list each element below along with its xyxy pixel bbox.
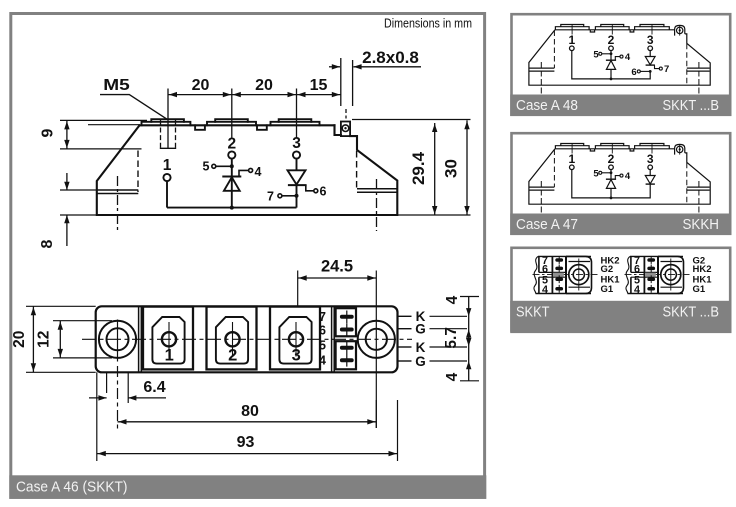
svg-text:6.4: 6.4 [143,379,165,396]
svg-text:7: 7 [319,310,326,324]
svg-text:SKKT ...B: SKKT ...B [663,304,720,321]
svg-text:6: 6 [320,185,327,199]
svg-text:K: K [416,340,426,355]
svg-text:2.8x0.8: 2.8x0.8 [362,48,419,67]
svg-text:6: 6 [319,323,326,337]
svg-text:12: 12 [36,331,53,348]
svg-text:30: 30 [442,159,461,178]
svg-text:3: 3 [292,347,301,365]
svg-text:SKKT ...B: SKKT ...B [663,97,720,114]
svg-text:24.5: 24.5 [321,258,353,276]
svg-text:9: 9 [40,128,57,137]
svg-text:5: 5 [593,49,599,60]
svg-text:2: 2 [608,33,615,47]
svg-text:20: 20 [255,77,273,94]
svg-text:3: 3 [647,152,654,166]
svg-text:Dimensions in mm: Dimensions in mm [384,16,472,31]
svg-text:4: 4 [444,295,461,304]
svg-text:G: G [415,322,426,337]
svg-text:3: 3 [647,33,654,47]
svg-text:4: 4 [625,52,631,63]
svg-text:29.4: 29.4 [409,151,428,185]
svg-text:4: 4 [255,165,262,179]
svg-text:Case A 47: Case A 47 [516,216,578,233]
svg-text:G: G [415,354,426,369]
svg-text:20: 20 [192,77,210,94]
svg-text:2: 2 [228,347,237,365]
svg-text:G1: G1 [601,284,614,295]
svg-text:1: 1 [568,152,575,166]
svg-text:1: 1 [568,33,575,47]
svg-text:8: 8 [39,239,56,248]
svg-text:5: 5 [203,160,210,174]
svg-text:20: 20 [11,331,28,348]
svg-text:7: 7 [267,190,274,204]
svg-text:SKKH: SKKH [683,216,720,233]
svg-text:1: 1 [165,347,174,365]
svg-text:4: 4 [625,171,631,182]
svg-text:80: 80 [241,403,259,420]
svg-text:15: 15 [310,77,328,94]
svg-text:Case A 48: Case A 48 [516,97,578,114]
svg-text:6: 6 [631,67,636,78]
svg-text:2: 2 [608,152,615,166]
svg-text:93: 93 [237,434,255,451]
svg-text:4: 4 [542,284,548,296]
svg-text:G1: G1 [693,284,706,295]
svg-text:Case A 46 (SKKT): Case A 46 (SKKT) [16,479,128,496]
svg-text:1: 1 [163,157,172,174]
svg-text:SKKT: SKKT [516,304,550,321]
svg-text:4: 4 [319,354,326,368]
svg-text:7: 7 [664,64,669,75]
svg-text:5: 5 [319,339,326,353]
svg-text:HK2: HK2 [693,264,712,275]
svg-text:M5: M5 [103,77,130,94]
svg-text:G2: G2 [601,264,614,275]
svg-text:5.7: 5.7 [443,327,460,349]
svg-text:4: 4 [444,372,461,381]
svg-text:5: 5 [593,168,599,179]
svg-text:4: 4 [634,284,640,296]
